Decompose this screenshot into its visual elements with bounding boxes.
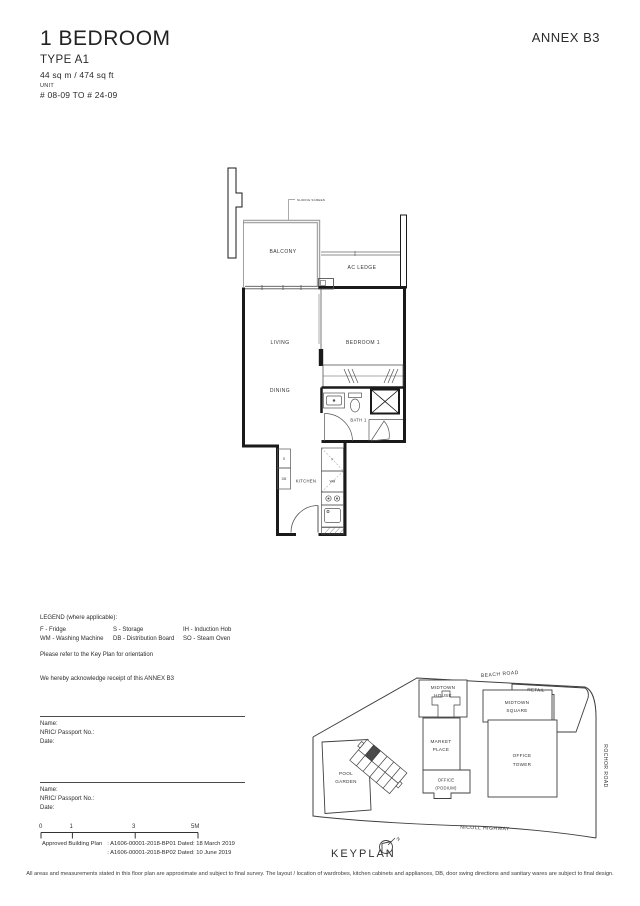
storage-label: S (283, 457, 285, 461)
floorplan-sheet: 1 BEDROOM TYPE A1 44 sq m / 474 sq ft UN… (0, 0, 640, 906)
legend-item: IH - Induction Hob (183, 626, 231, 635)
midtown-square-label-2: SQUARE (506, 708, 527, 713)
wardrobe (323, 365, 403, 387)
kitchen-label: KITCHEN (296, 479, 316, 484)
midtown-square-label-1: MIDTOWN (505, 700, 529, 705)
floorplan-drawing: SLIDING SCREEN (200, 160, 440, 560)
approval-block: Approved Building Plan : A1606-00001-201… (42, 840, 235, 858)
building-office-podium (423, 770, 470, 799)
ac-ledge-label: AC LEDGE (348, 265, 377, 271)
approval-line-2: : A1606-00001-2018-BP02 Dated: 10 June 2… (107, 849, 235, 858)
keyplan-note: Please refer to the Key Plan for orienta… (40, 652, 153, 658)
sliding-screen-label: SLIDING SCREEN (297, 198, 325, 202)
nric-label[interactable]: NRIC/ Passport No.: (40, 795, 245, 804)
office-podium-label-2: (PODIUM) (435, 786, 457, 791)
wm-label: WM (330, 480, 336, 484)
name-label[interactable]: Name: (40, 786, 245, 795)
sliding-screen-annotation: SLIDING SCREEN (289, 198, 326, 220)
scale-tick-5m: 5M (191, 824, 199, 830)
toilet (349, 393, 362, 412)
unit-range: # 08-09 TO # 24-09 (40, 90, 171, 100)
nric-label[interactable]: NRIC/ Passport No.: (40, 729, 245, 738)
left-wall-spur (228, 168, 242, 258)
balcony-label: BALCONY (269, 249, 296, 255)
unit-label: UNIT (40, 83, 171, 89)
living-label: LIVING (270, 340, 289, 346)
office-tower-label-1: OFFICE (513, 753, 532, 758)
midtown-house-label-2: HOUSE (434, 693, 452, 698)
shower (369, 420, 403, 442)
kitchen-cabinets-left: S DB (278, 449, 291, 489)
building-midtown-square (483, 690, 552, 722)
bedroom-label: BEDROOM 1 (346, 340, 380, 346)
date-label[interactable]: Date: (40, 738, 245, 747)
signature-block-2: Name: NRIC/ Passport No.: Date: (40, 782, 245, 813)
approval-line-1: : A1606-00001-2018-BP01 Dated: 18 March … (107, 840, 235, 849)
building-office-tower (488, 720, 557, 797)
legend-item: SO - Steam Oven (183, 635, 231, 644)
name-label[interactable]: Name: (40, 720, 245, 729)
header-block: 1 BEDROOM TYPE A1 44 sq m / 474 sq ft UN… (40, 27, 171, 100)
scale-bar: 0 1 3 5M (38, 819, 208, 841)
legend: LEGEND (where applicable): F - Fridge S … (40, 614, 231, 644)
legend-item: DB - Distribution Board (113, 635, 183, 644)
date-label[interactable]: Date: (40, 804, 245, 813)
scale-tick-0: 0 (39, 824, 43, 830)
retail-label: RETAIL (527, 687, 545, 693)
unit-area: 44 sq m / 474 sq ft (40, 70, 171, 80)
legend-item: S - Storage (113, 626, 183, 635)
bath-door (325, 414, 353, 442)
db-label: DB (282, 477, 287, 481)
pool-garden-label-2: GARDEN (335, 779, 356, 784)
right-wall-spur (401, 215, 407, 288)
bedroom-partition (319, 289, 323, 366)
fridge-label: F (331, 458, 333, 462)
nicoll-highway-label: NICOLL HIGHWAY (460, 825, 510, 833)
outer-walls (244, 288, 407, 535)
dining-label: DINING (270, 388, 290, 394)
footer-disclaimer: All areas and measurements stated in thi… (0, 871, 640, 877)
scale-tick-3: 3 (132, 824, 136, 830)
midtown-house-label-1: MIDTOWN (431, 685, 455, 690)
ac-ledge-rail (321, 251, 400, 256)
approval-label: Approved Building Plan (42, 840, 102, 858)
north-label: N (395, 836, 401, 842)
legend-item: WM - Washing Machine (40, 635, 113, 644)
market-place-label-1: MARKET (431, 739, 452, 744)
legend-title: LEGEND (where applicable): (40, 614, 231, 623)
pool-garden-label-1: POOL (339, 771, 353, 776)
entry-door (291, 506, 318, 533)
shaft (371, 390, 399, 414)
office-tower-label-2: TOWER (513, 762, 532, 767)
kitchen-column: F WM (322, 448, 344, 534)
annex-label: ANNEX B3 (532, 30, 600, 45)
bath-label: BATH 1 (350, 418, 367, 423)
building-market-place (423, 718, 460, 770)
acknowledgement-note: We hereby acknowledge receipt of this AN… (40, 676, 174, 682)
market-place-label-2: PLACE (433, 747, 450, 752)
signature-block-1: Name: NRIC/ Passport No.: Date: (40, 716, 245, 747)
page-title: 1 BEDROOM (40, 27, 171, 51)
keyplan-title: KEYPLAN (331, 848, 396, 860)
beach-road-label: BEACH ROAD (481, 670, 519, 679)
unit-type: TYPE A1 (40, 54, 171, 66)
keyplan-map: MIDTOWN HOUSE RETAIL MIDTOWN SQUARE MARK… (308, 658, 640, 863)
office-podium-label-1: OFFICE (438, 778, 455, 783)
scale-tick-1: 1 (70, 824, 74, 830)
legend-item: F - Fridge (40, 626, 113, 635)
rochor-road-label: ROCHOR ROAD (602, 744, 608, 788)
vanity (324, 393, 345, 408)
